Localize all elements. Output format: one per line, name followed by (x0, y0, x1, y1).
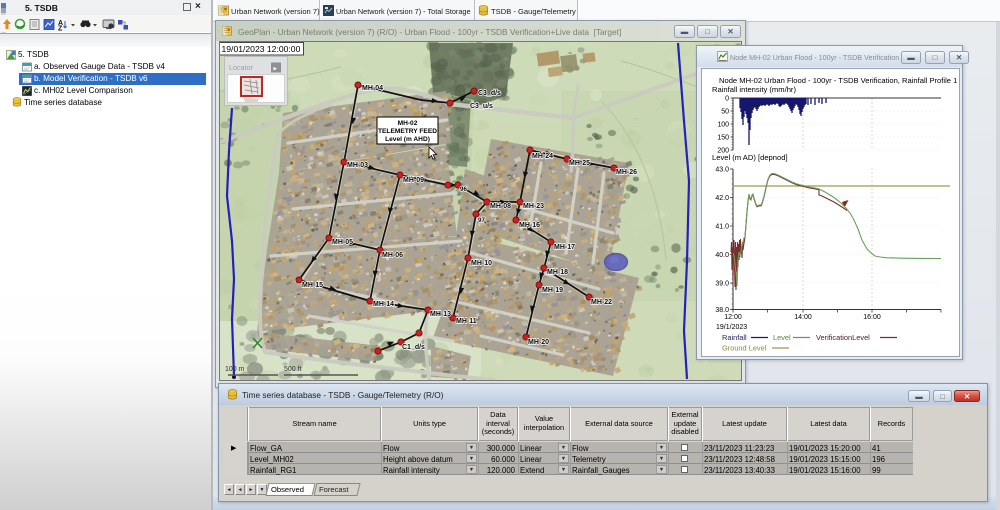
svg-text:C3_d/s: C3_d/s (478, 90, 501, 97)
svg-text:Ground Level: Ground Level (722, 344, 767, 353)
svg-text:43.0: 43.0 (715, 167, 729, 174)
svg-text:MH-23: MH-23 (523, 203, 544, 210)
svg-text:C3_u/s: C3_u/s (470, 103, 493, 110)
svg-text:C1_d/s: C1_d/s (402, 344, 425, 351)
svg-text:MH-03: MH-03 (347, 162, 368, 169)
svg-text:Level (m AHD): Level (m AHD) (385, 136, 430, 143)
svg-text:16:00: 16:00 (863, 314, 881, 321)
svg-text:42.0: 42.0 (715, 195, 729, 202)
svg-text:MH-19: MH-19 (542, 287, 563, 294)
svg-text:MH-16: MH-16 (519, 222, 540, 229)
svg-text:97: 97 (478, 217, 485, 224)
svg-text:100 m: 100 m (225, 366, 245, 373)
svg-text:MH-05: MH-05 (332, 239, 353, 246)
svg-text:MH-15: MH-15 (302, 282, 323, 289)
svg-text:96: 96 (460, 186, 467, 193)
svg-text:Node MH-02 Urban Flood - 100yr: Node MH-02 Urban Flood - 100yr - TSDB Ve… (719, 76, 957, 85)
svg-text:19/1/2023: 19/1/2023 (716, 324, 747, 331)
svg-text:14:00: 14:00 (794, 314, 812, 321)
svg-text:MH-17: MH-17 (554, 244, 575, 251)
svg-text:12:00: 12:00 (724, 314, 742, 321)
svg-text:Level: Level (773, 333, 791, 342)
svg-text:Rainfall intensity (mm/hr): Rainfall intensity (mm/hr) (712, 85, 796, 94)
svg-text:41.0: 41.0 (715, 224, 729, 231)
svg-text:0: 0 (725, 96, 729, 103)
svg-text:38.0: 38.0 (715, 307, 729, 314)
svg-text:MH-18: MH-18 (547, 269, 568, 276)
svg-text:MH-02: MH-02 (398, 120, 418, 127)
svg-text:39.0: 39.0 (715, 281, 729, 288)
svg-text:MH-06: MH-06 (382, 252, 403, 259)
svg-text:MH-20: MH-20 (528, 339, 549, 346)
svg-text:VerificationLevel: VerificationLevel (816, 333, 870, 342)
svg-text:MH-14: MH-14 (373, 301, 394, 308)
svg-text:MH-11: MH-11 (456, 318, 477, 325)
svg-text:MH-04: MH-04 (362, 85, 383, 92)
svg-text:MH-09: MH-09 (403, 177, 424, 184)
svg-text:500 ft: 500 ft (284, 366, 302, 373)
svg-text:MH-10: MH-10 (471, 260, 492, 267)
svg-text:150: 150 (717, 135, 729, 142)
svg-text:MH-24: MH-24 (532, 153, 553, 160)
svg-text:Level (m AD) [depnod]: Level (m AD) [depnod] (712, 153, 788, 162)
svg-text:50: 50 (721, 109, 729, 116)
svg-text:Z: Z (58, 26, 63, 33)
svg-text:40.0: 40.0 (715, 252, 729, 259)
svg-text:▸: ▸ (274, 66, 278, 73)
svg-text:19/01/2023 12:00:00: 19/01/2023 12:00:00 (222, 44, 301, 54)
svg-text:Rainfall: Rainfall (722, 333, 747, 342)
svg-text:Locator: Locator (229, 63, 254, 72)
svg-text:MH-13: MH-13 (430, 311, 451, 318)
svg-text:100: 100 (717, 122, 729, 129)
svg-text:TELEMETRY FEED: TELEMETRY FEED (378, 128, 437, 135)
svg-text:MH-26: MH-26 (616, 169, 637, 176)
svg-text:MH-25: MH-25 (569, 160, 590, 167)
svg-text:MH-22: MH-22 (591, 299, 612, 306)
svg-text:MH-08: MH-08 (490, 203, 511, 210)
